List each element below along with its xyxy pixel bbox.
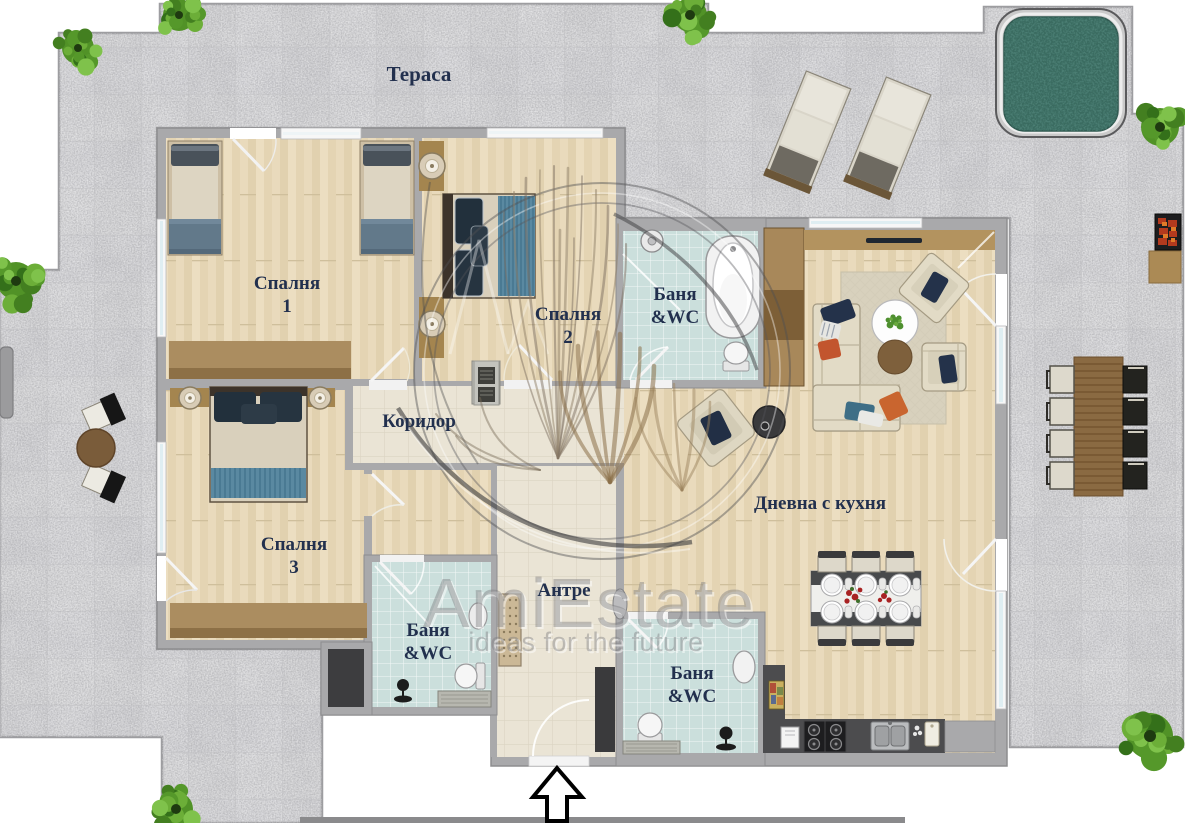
svg-text:2: 2 [563, 327, 573, 348]
svg-text:Спалня: Спалня [254, 273, 320, 294]
svg-text:Коридор: Коридор [382, 411, 456, 432]
svg-text:Баня: Баня [653, 284, 696, 305]
svg-text:1: 1 [282, 296, 292, 317]
svg-text:Антре: Антре [537, 580, 590, 601]
svg-text:Спалня: Спалня [535, 304, 601, 325]
svg-text:Дневна с кухня: Дневна с кухня [754, 493, 886, 514]
svg-text:3: 3 [289, 557, 299, 578]
svg-text:&WC: &WC [404, 643, 453, 664]
svg-text:&WC: &WC [651, 307, 700, 328]
svg-text:Спалня: Спалня [261, 534, 327, 555]
svg-text:Тераса: Тераса [387, 62, 452, 86]
svg-text:Баня: Баня [406, 620, 449, 641]
svg-text:ideas for the future: ideas for the future [468, 627, 703, 657]
svg-text:&WC: &WC [668, 686, 717, 707]
svg-text:Баня: Баня [670, 663, 713, 684]
